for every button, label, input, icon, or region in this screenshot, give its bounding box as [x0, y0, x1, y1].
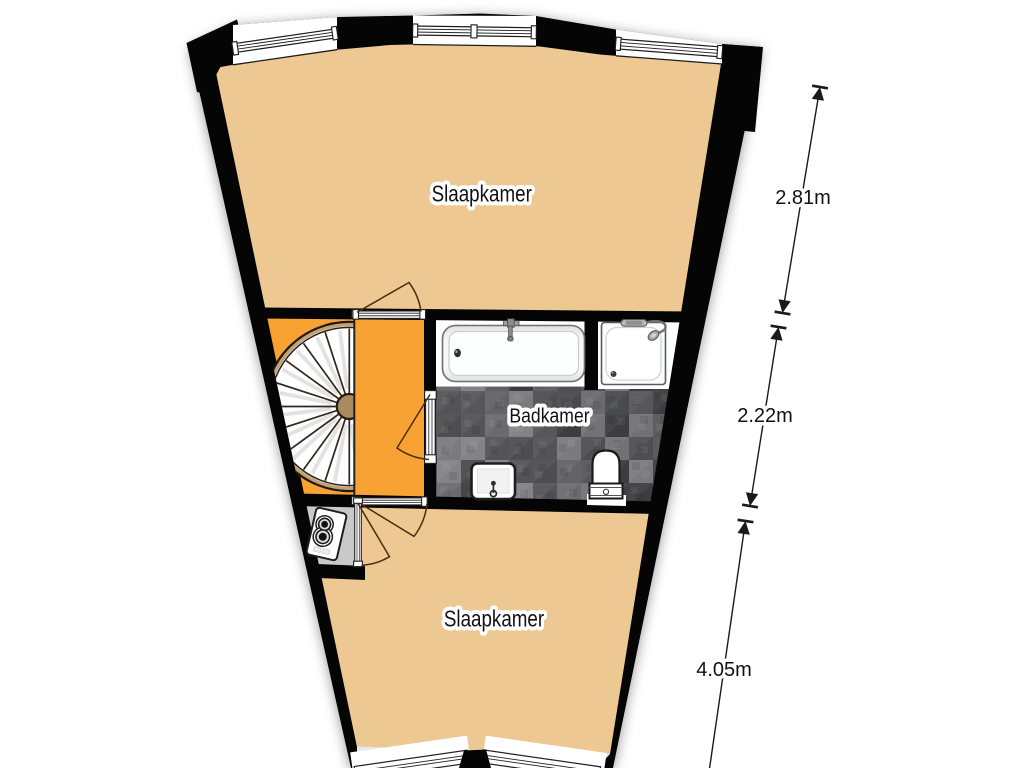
svg-text:2.22m: 2.22m	[737, 405, 793, 427]
svg-text:2.81m: 2.81m	[775, 187, 831, 209]
svg-text:Slaapkamer: Slaapkamer	[444, 606, 544, 633]
svg-text:Badkamer: Badkamer	[509, 404, 589, 426]
svg-text:4.05m: 4.05m	[696, 659, 752, 681]
svg-text:Slaapkamer: Slaapkamer	[432, 181, 532, 208]
